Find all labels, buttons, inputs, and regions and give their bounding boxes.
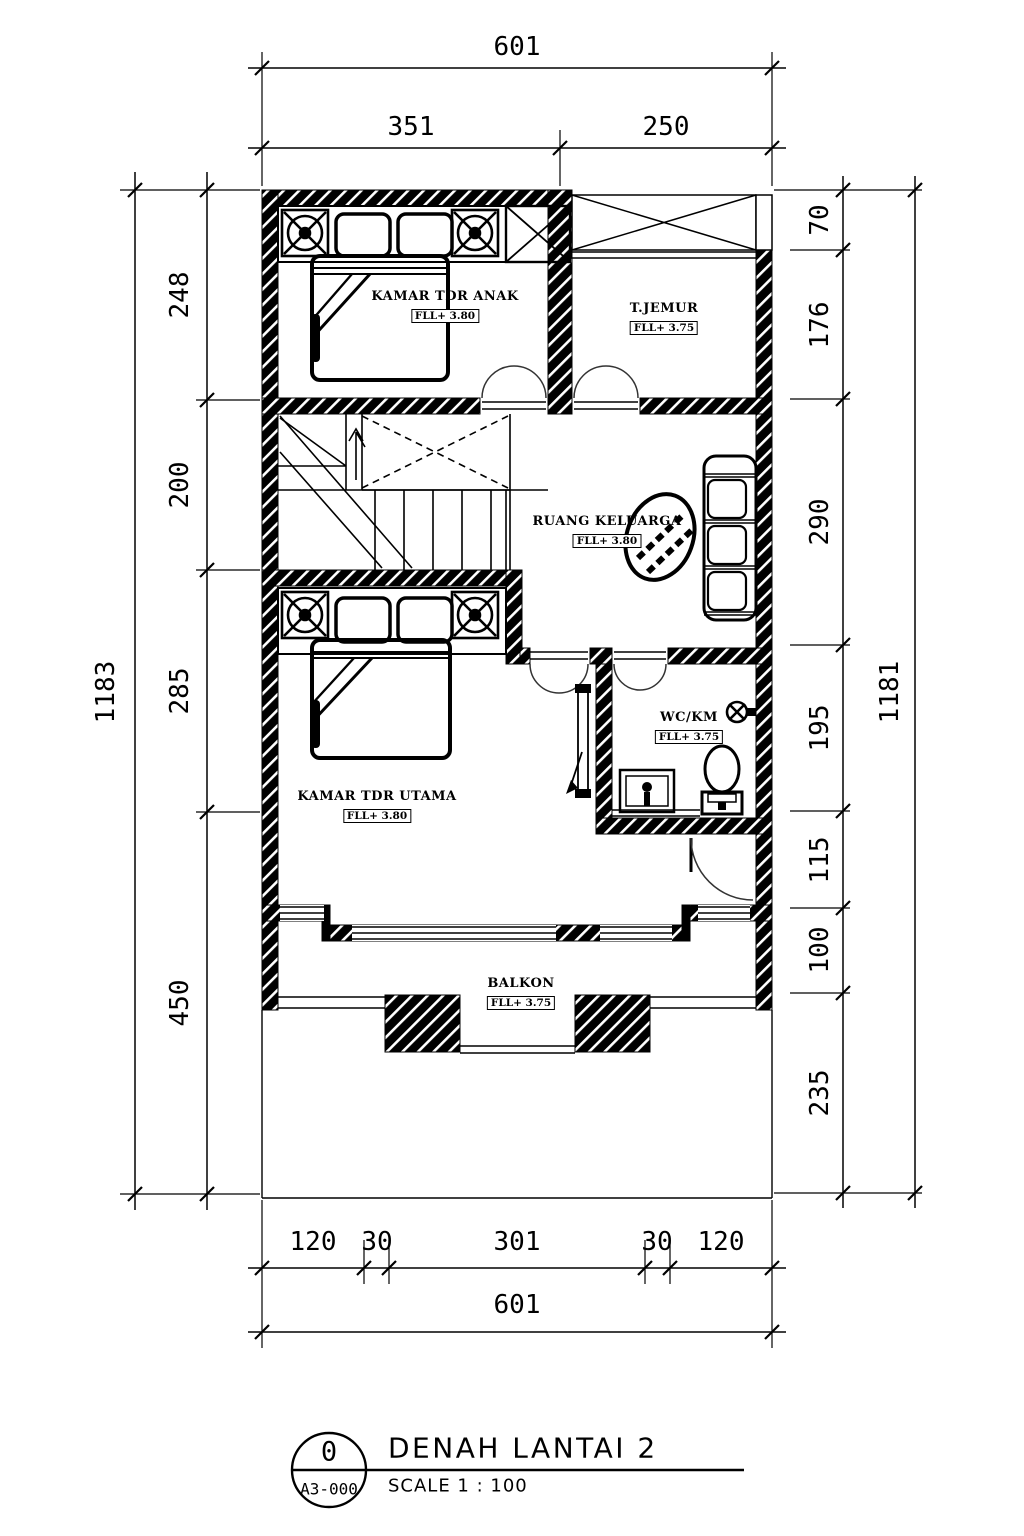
fan-symbol — [452, 210, 498, 256]
dim-bottom-overall: 601 — [494, 1292, 541, 1318]
room-elevation: FLL+ 3.80 — [343, 809, 411, 823]
room-label-wc-km: WC/KM FLL+ 3.75 — [655, 710, 723, 744]
dim-left-seg-1: 248 — [167, 272, 193, 319]
room-elevation: FLL+ 3.75 — [655, 730, 723, 744]
dim-left-overall: 1183 — [93, 661, 119, 724]
room-name: KAMAR TDR ANAK — [371, 289, 518, 304]
dim-right-seg-1: 70 — [807, 204, 833, 235]
room-name: RUANG KELUARGA — [533, 514, 682, 529]
room-label-t-jemur: T.JEMUR FLL+ 3.75 — [630, 301, 699, 335]
sofa-seat — [708, 526, 746, 564]
room-label-kamar-tdr-anak: KAMAR TDR ANAK FLL+ 3.80 — [371, 289, 518, 323]
pillow — [398, 214, 452, 256]
room-name: WC/KM — [655, 710, 723, 725]
room-label-balkon: BALKON FLL+ 3.75 — [487, 976, 555, 1010]
furniture-bedroom-utama — [278, 588, 506, 758]
room-elevation: FLL+ 3.80 — [573, 534, 641, 548]
wall-family-left — [520, 648, 530, 664]
room-label-ruang-keluarga: RUANG KELUARGA FLL+ 3.80 — [533, 514, 682, 548]
roof-outline — [262, 1010, 772, 1198]
fan-symbol — [452, 592, 498, 638]
wall-stair-bottom — [262, 570, 520, 586]
wall-top — [262, 190, 572, 206]
bed-size-tag — [311, 700, 320, 748]
parapet-block-left — [385, 995, 460, 1052]
floor-plan-sheet: 601 351 250 120 30 301 30 120 601 1183 2… — [0, 0, 1024, 1536]
dim-right-seg-6: 100 — [807, 927, 833, 974]
toilet — [702, 746, 742, 814]
wall-door-pier — [590, 648, 612, 664]
dim-right-seg-2: 176 — [807, 302, 833, 349]
dim-top-seg-2: 250 — [643, 114, 690, 140]
dim-right-seg-5: 115 — [807, 837, 833, 884]
stair-treads — [375, 490, 510, 570]
sink — [620, 770, 674, 812]
shower-symbol — [727, 702, 756, 722]
stair-void-x — [362, 416, 508, 488]
parapet-block-right — [575, 995, 650, 1052]
dim-bottom-seg-1: 120 — [290, 1229, 337, 1255]
dimension-ticks — [128, 61, 922, 1339]
wall-left — [262, 190, 278, 1010]
door-arc-wc — [614, 664, 666, 690]
room-elevation: FLL+ 3.75 — [487, 996, 555, 1010]
pillow — [398, 598, 452, 642]
sheet-code: A3-000 — [300, 1480, 358, 1499]
room-name: T.JEMUR — [630, 301, 699, 316]
dim-right-seg-3: 290 — [807, 499, 833, 546]
wall-wc-left — [596, 664, 612, 818]
dim-bottom-seg-4: 30 — [641, 1229, 672, 1255]
dim-bottom-seg-2: 30 — [361, 1229, 392, 1255]
fan-symbol — [282, 592, 328, 638]
wall-bedroom-jemur — [548, 190, 572, 414]
room-label-kamar-tdr-utama: KAMAR TDR UTAMA FLL+ 3.80 — [297, 789, 456, 823]
dim-top-overall: 601 — [494, 34, 541, 60]
dim-bottom-seg-5: 120 — [698, 1229, 745, 1255]
dim-right-overall: 1181 — [877, 661, 903, 724]
dim-right-seg-7: 235 — [807, 1070, 833, 1117]
wall-right — [756, 250, 772, 1010]
door-arc-balcony — [691, 838, 753, 900]
pillow — [336, 214, 390, 256]
wall-family-right — [668, 648, 772, 664]
room-elevation: FLL+ 3.80 — [411, 309, 479, 323]
drawing-title: DENAH LANTAI 2 — [388, 1432, 658, 1465]
room-name: KAMAR TDR UTAMA — [297, 789, 456, 804]
bed-size-tag — [311, 314, 320, 362]
room-elevation: FLL+ 3.75 — [630, 321, 698, 335]
dim-right-seg-4: 195 — [807, 705, 833, 752]
dim-bottom-seg-3: 301 — [494, 1229, 541, 1255]
dim-top-seg-1: 351 — [388, 114, 435, 140]
wall-mid-upper-right — [640, 398, 772, 414]
wall-balcony-step-r — [682, 905, 690, 941]
fan-symbol — [282, 210, 328, 256]
sofa-seat — [708, 572, 746, 610]
sliding-door-leaf — [578, 690, 588, 792]
sofa-seat — [708, 480, 746, 518]
wall-mid-upper-left — [262, 398, 480, 414]
room-name: BALKON — [487, 976, 555, 991]
pillow — [336, 598, 390, 642]
drawing-number: 0 — [321, 1437, 337, 1468]
dimension-lines — [135, 68, 915, 1332]
dim-left-seg-3: 285 — [167, 668, 193, 715]
door-arc-bedroom-anak — [482, 366, 546, 398]
wall-wc-bottom — [596, 818, 772, 834]
dimension-extension-lines — [120, 52, 922, 1348]
void-over-jemur — [572, 195, 772, 258]
door-arc-jemur — [574, 366, 638, 398]
staircase — [278, 414, 548, 570]
dim-left-seg-2: 200 — [167, 462, 193, 509]
drawing-scale: SCALE 1 : 100 — [388, 1476, 528, 1497]
dim-left-seg-4: 450 — [167, 980, 193, 1027]
